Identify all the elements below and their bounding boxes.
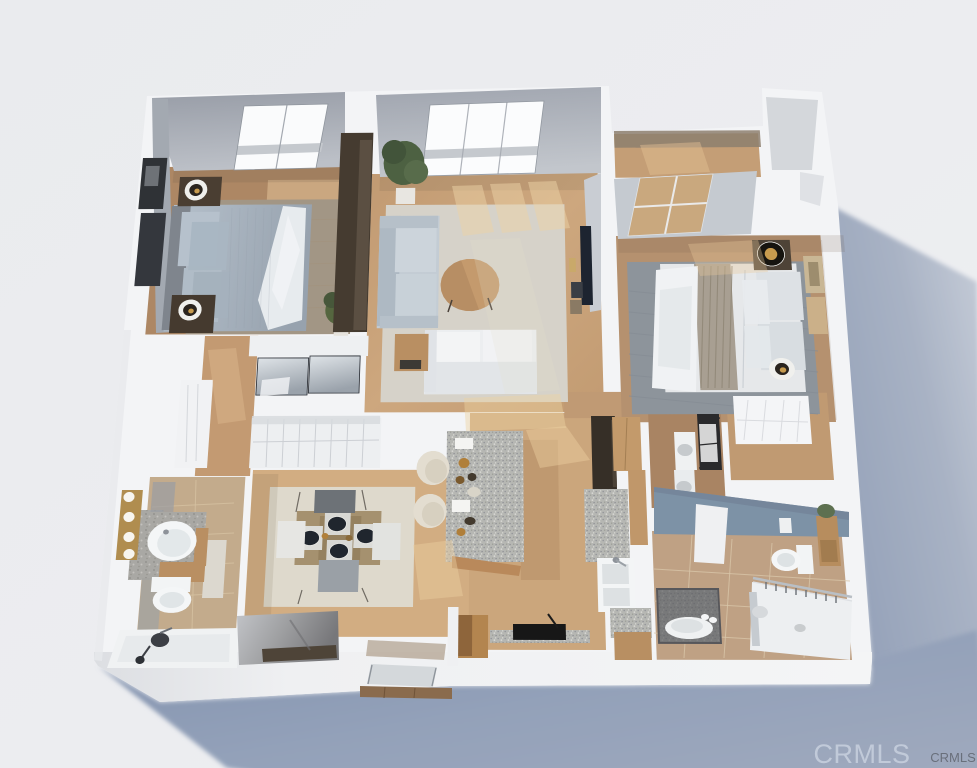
svg-text:CRMLS: CRMLS: [930, 750, 976, 765]
svg-text:CRMLS: CRMLS: [813, 739, 910, 768]
